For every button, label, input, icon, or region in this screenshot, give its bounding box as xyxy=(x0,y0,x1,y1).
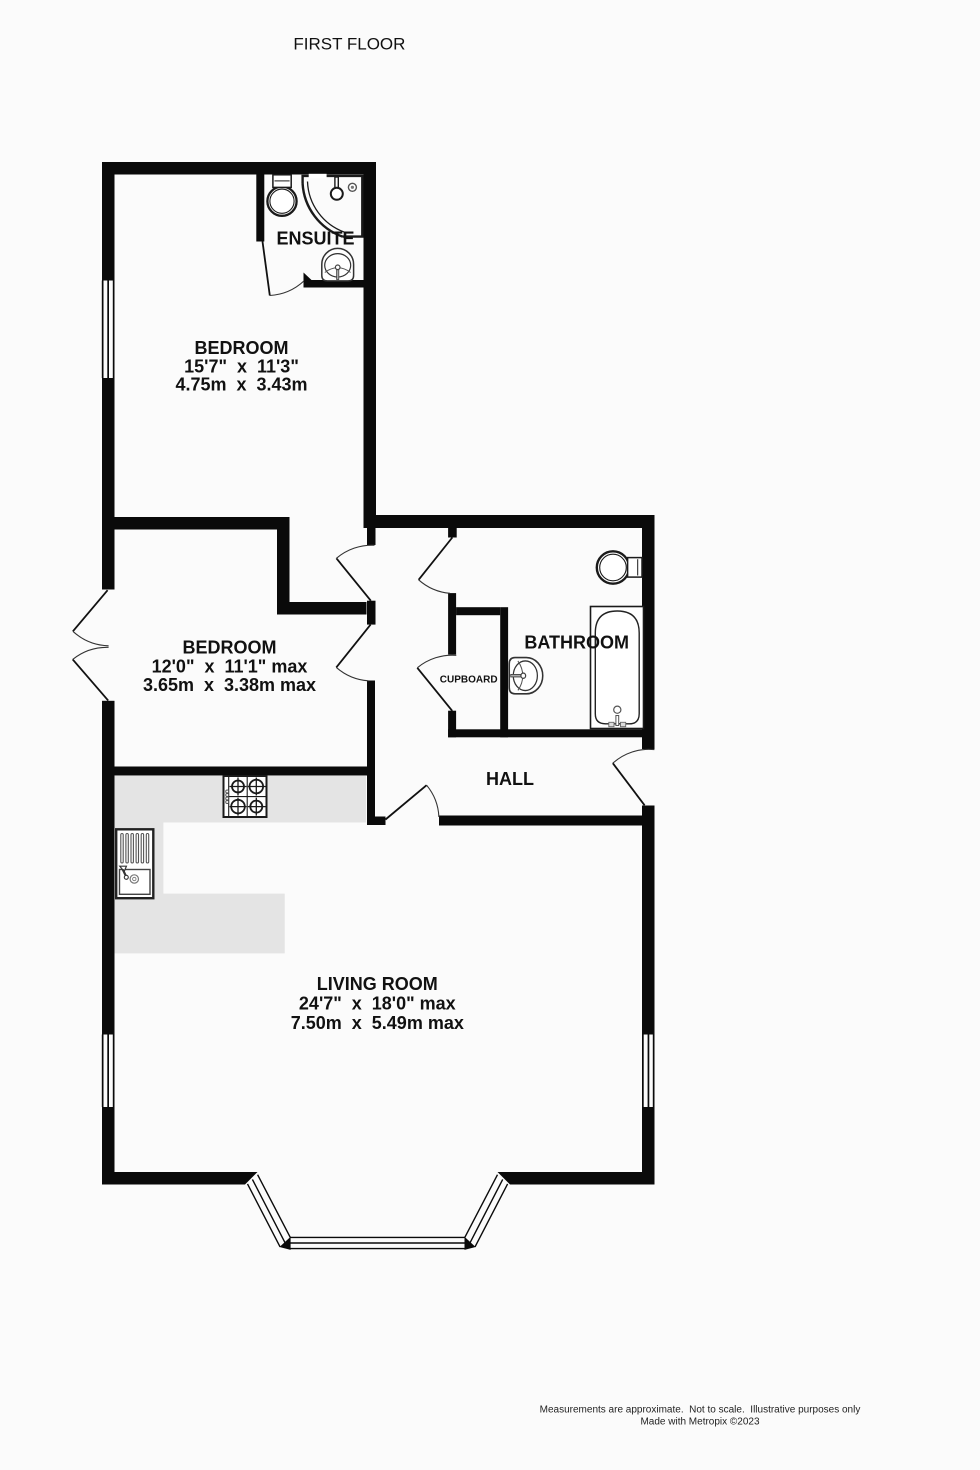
svg-text:BEDROOM: BEDROOM xyxy=(195,338,289,358)
svg-text:24'7" x 18'0" max: 24'7" x 18'0" max xyxy=(299,994,456,1014)
svg-text:CUPBOARD: CUPBOARD xyxy=(440,675,498,686)
svg-text:ENSUITE: ENSUITE xyxy=(276,228,354,248)
svg-text:4.75m x 3.43m: 4.75m x 3.43m xyxy=(175,375,307,395)
svg-text:Measurements are approximate.: Measurements are approximate. Not to sca… xyxy=(540,1405,861,1416)
svg-text:12'0" x 11'1" max: 12'0" x 11'1" max xyxy=(152,656,308,676)
svg-text:Made with Metropix ©2023: Made with Metropix ©2023 xyxy=(640,1417,760,1428)
svg-text:15'7" x 11'3": 15'7" x 11'3" xyxy=(184,357,299,377)
svg-text:BEDROOM: BEDROOM xyxy=(183,638,277,658)
svg-text:3.65m x 3.38m max: 3.65m x 3.38m max xyxy=(143,675,316,695)
svg-text:7.50m x 5.49m max: 7.50m x 5.49m max xyxy=(291,1013,464,1033)
svg-text:BATHROOM: BATHROOM xyxy=(524,633,629,653)
svg-text:LIVING ROOM: LIVING ROOM xyxy=(317,974,438,994)
svg-text:HALL: HALL xyxy=(486,769,534,789)
svg-text:FIRST FLOOR: FIRST FLOOR xyxy=(293,35,405,54)
